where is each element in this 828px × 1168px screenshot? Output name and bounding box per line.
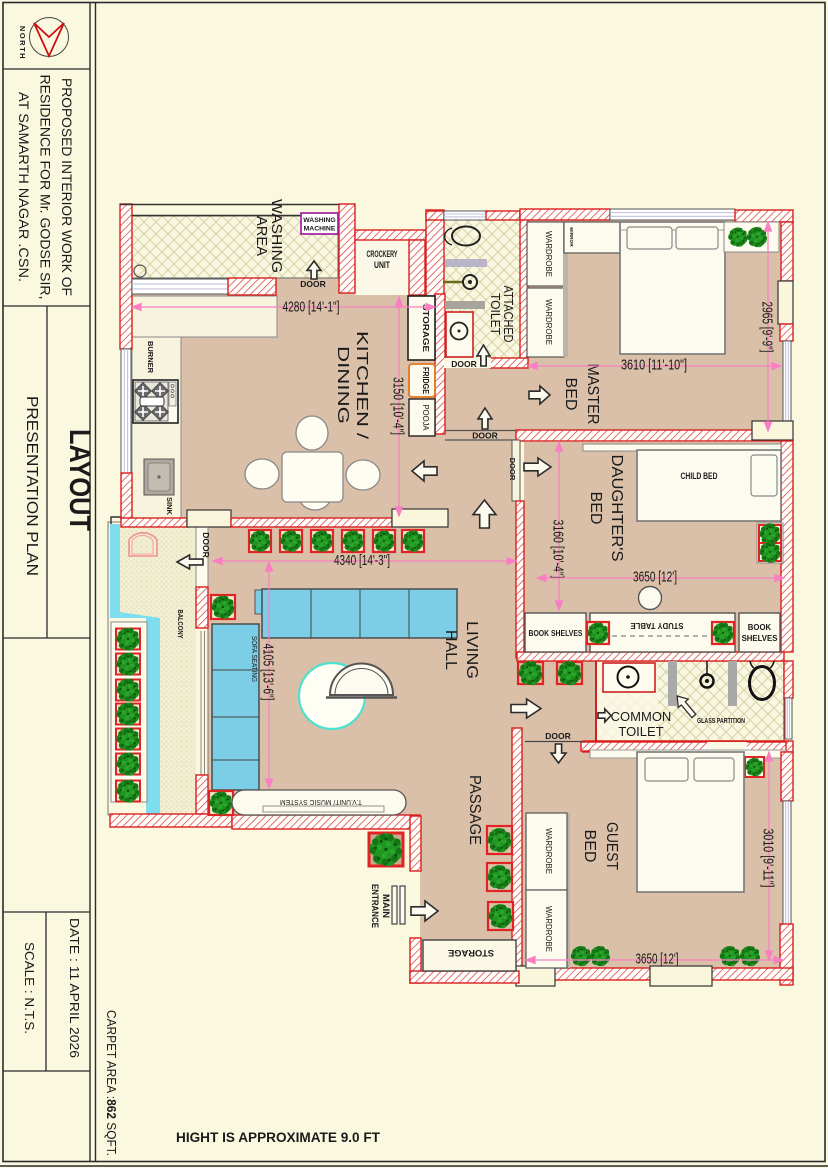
svg-text:TOILET: TOILET (618, 724, 663, 739)
svg-text:CROCKERY: CROCKERY (367, 249, 398, 259)
svg-text:FRIDGE: FRIDGE (421, 367, 431, 394)
svg-text:DAUGHTER'S: DAUGHTER'S (608, 455, 625, 562)
svg-text:AREA: AREA (253, 216, 270, 256)
svg-text:PASSAGE: PASSAGE (466, 775, 483, 845)
svg-text:DOOR: DOOR (545, 731, 571, 741)
svg-text:DOOR: DOOR (472, 431, 498, 441)
svg-text:DINING: DINING (334, 346, 351, 424)
svg-text:BALCONY: BALCONY (176, 610, 185, 639)
svg-text:NORTH: NORTH (18, 26, 27, 60)
svg-text:GLASS PARTITION: GLASS PARTITION (697, 716, 745, 725)
svg-text:WARDROBE: WARDROBE (544, 828, 553, 874)
svg-text:4280 [14'-1"]: 4280 [14'-1"] (283, 299, 340, 316)
svg-text:MASTER: MASTER (584, 364, 601, 425)
svg-text:DOOR: DOOR (300, 279, 326, 289)
svg-text:WARDROBE: WARDROBE (544, 231, 553, 277)
svg-text:DOOR: DOOR (508, 458, 517, 481)
svg-text:WASHING: WASHING (303, 217, 335, 224)
svg-text:DOOR: DOOR (201, 532, 211, 558)
svg-text:3160 [10'-4"]: 3160 [10'-4"] (550, 520, 567, 579)
svg-text:3010 [9'-11"]: 3010 [9'-11"] (760, 829, 777, 888)
svg-text:BOOK SHELVES: BOOK SHELVES (529, 629, 583, 638)
svg-text:ATTACHED: ATTACHED (501, 286, 515, 343)
svg-text:KITCHEN /: KITCHEN / (353, 331, 370, 440)
svg-text:DATE : 11 APRIL 2026: DATE : 11 APRIL 2026 (67, 918, 81, 1058)
svg-text:GUEST: GUEST (603, 822, 620, 870)
svg-text:POOJA: POOJA (421, 405, 431, 431)
svg-text:3150 [10'-4"]: 3150 [10'-4"] (390, 377, 407, 435)
svg-text:AT SAMARTH NAGAR .CSN.: AT SAMARTH NAGAR .CSN. (16, 92, 32, 282)
svg-text:STUDY TABLE: STUDY TABLE (630, 621, 683, 631)
svg-text:PROPOSED INTERIOR WORK OF: PROPOSED INTERIOR WORK OF (59, 78, 75, 296)
svg-text:SCALE : N.T.S.: SCALE : N.T.S. (22, 942, 36, 1034)
svg-text:WARDROBE: WARDROBE (544, 299, 553, 345)
svg-text:DOOR: DOOR (451, 359, 477, 369)
svg-text:BED: BED (587, 492, 604, 525)
svg-text:STORAGE: STORAGE (448, 947, 494, 958)
svg-text:BOOK: BOOK (748, 623, 772, 632)
svg-text:4340 [14'-3"]: 4340 [14'-3"] (334, 552, 390, 569)
svg-text:CHILD BED: CHILD BED (681, 471, 718, 481)
svg-text:MACHINE: MACHINE (304, 226, 336, 233)
svg-text:PRESENTATION PLAN: PRESENTATION PLAN (23, 396, 40, 576)
svg-text:WARDROBE: WARDROBE (544, 906, 553, 952)
svg-text:COMMON: COMMON (611, 709, 672, 724)
svg-text:T.V.UNIT/ MUSIC SYSTEM: T.V.UNIT/ MUSIC SYSTEM (280, 798, 362, 807)
svg-text:HALL: HALL (442, 630, 459, 670)
svg-text:BURNER: BURNER (146, 341, 155, 374)
svg-text:CARPET AREA :862 SQFT.: CARPET AREA :862 SQFT. (104, 1010, 119, 1156)
svg-text:SOFA SEATING: SOFA SEATING (250, 636, 257, 682)
svg-text:UNIT: UNIT (374, 260, 390, 270)
svg-text:MAIN: MAIN (380, 894, 391, 918)
svg-text:BED: BED (562, 378, 579, 411)
svg-text:LIVING: LIVING (463, 621, 480, 679)
svg-text:3650 [12']: 3650 [12'] (633, 569, 677, 586)
svg-text:SHELVES: SHELVES (742, 634, 778, 643)
svg-text:ENTRANCE: ENTRANCE (369, 884, 380, 928)
svg-text:LAYOUT: LAYOUT (63, 429, 96, 531)
svg-text:4105 [13'-6"]: 4105 [13'-6"] (260, 644, 277, 701)
svg-text:BED: BED (581, 830, 598, 863)
svg-text:2965 [9'-9"]: 2965 [9'-9"] (759, 302, 776, 353)
svg-text:MIRROR: MIRROR (568, 227, 574, 247)
svg-text:TOILET: TOILET (488, 293, 502, 335)
svg-text:HIGHT IS APPROXIMATE 9.0 FT: HIGHT IS APPROXIMATE 9.0 FT (176, 1130, 381, 1145)
svg-text:STORAGE: STORAGE (421, 304, 431, 352)
svg-text:3650 [12']: 3650 [12'] (636, 951, 679, 968)
svg-text:3610 [11'-10"]: 3610 [11'-10"] (621, 357, 687, 374)
svg-text:SINK: SINK (165, 497, 174, 516)
svg-text:RESIDENCE FOR Mr. GODSE SIR,: RESIDENCE FOR Mr. GODSE SIR, (38, 75, 54, 300)
